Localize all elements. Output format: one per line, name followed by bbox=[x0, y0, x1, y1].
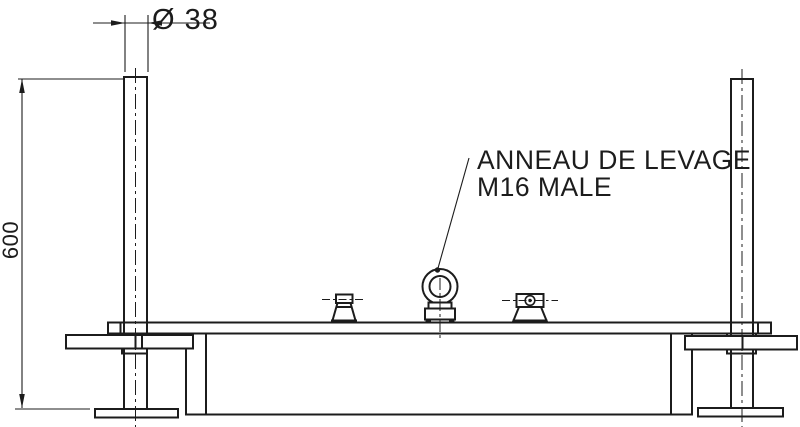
right-clamp-bar bbox=[685, 336, 797, 350]
centerlines bbox=[136, 68, 743, 427]
diameter-arrow-left bbox=[111, 20, 125, 26]
main-beam bbox=[206, 334, 671, 415]
technical-drawing-canvas: Ø 38 600 ANNEAU DE LEVAGE M16 MALE bbox=[0, 0, 800, 427]
height-arrow-top bbox=[19, 79, 25, 93]
diameter-dimension-text: Ø 38 bbox=[152, 4, 219, 36]
left-clamp-bar bbox=[66, 335, 193, 349]
height-dimension bbox=[15, 79, 124, 409]
right-rest-pad bbox=[513, 294, 548, 321]
right-pad-body bbox=[514, 307, 547, 321]
callout-leader-line bbox=[438, 158, 470, 270]
height-dimension-text: 600 bbox=[0, 221, 23, 259]
dimension-graphics bbox=[15, 15, 469, 409]
callout-leader-dot bbox=[435, 267, 440, 272]
callout-text-line2: M16 MALE bbox=[477, 172, 612, 202]
height-arrow-bottom bbox=[19, 394, 25, 408]
callout-leader bbox=[435, 158, 469, 273]
left-pad-cap bbox=[336, 295, 353, 304]
left-foot-plate bbox=[95, 409, 178, 418]
callout-text-line1: ANNEAU DE LEVAGE bbox=[477, 145, 751, 175]
right-foot-plate bbox=[698, 408, 783, 417]
frame-structure bbox=[66, 77, 797, 418]
technical-drawing-page: Ø 38 600 ANNEAU DE LEVAGE M16 MALE bbox=[0, 0, 800, 427]
left-pad-body bbox=[333, 303, 356, 321]
left-rest-pad bbox=[331, 295, 357, 321]
